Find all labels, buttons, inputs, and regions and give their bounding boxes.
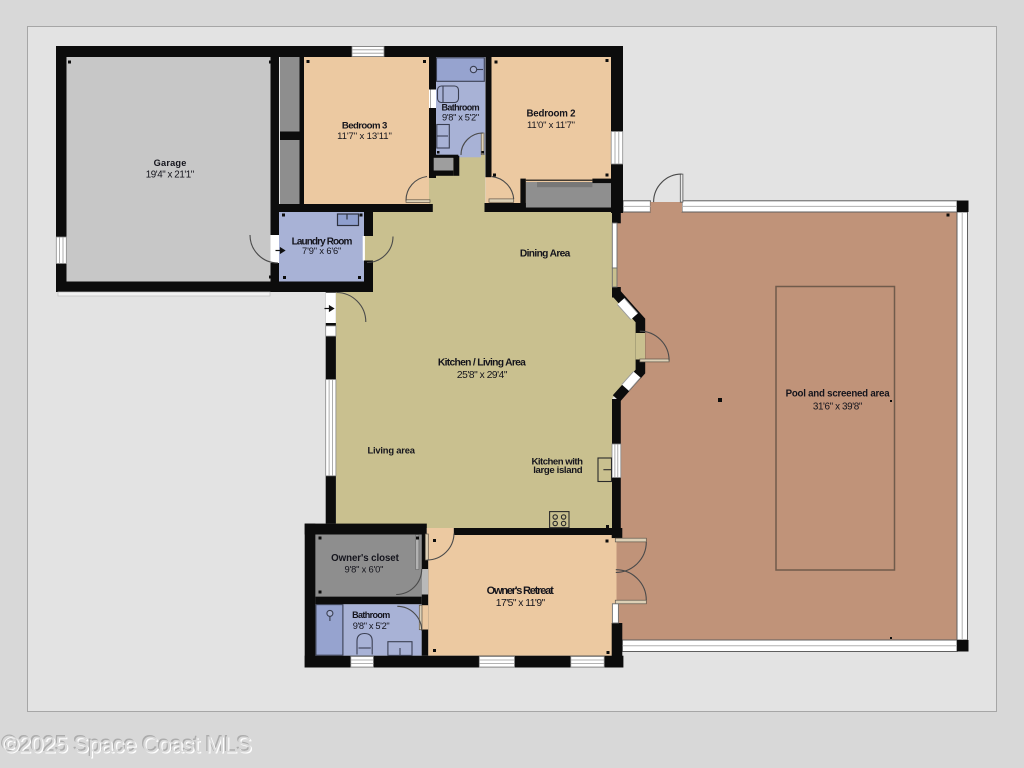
svg-text:Bathroom: Bathroom xyxy=(442,103,480,113)
svg-text:17'5" x 11'9": 17'5" x 11'9" xyxy=(496,598,546,609)
svg-text:19'4" x 21'1": 19'4" x 21'1" xyxy=(146,170,195,181)
svg-text:9'8" x 5'2": 9'8" x 5'2" xyxy=(442,113,479,123)
svg-text:31'6" x 39'8": 31'6" x 39'8" xyxy=(813,402,863,413)
svg-text:9'8" x 5'2": 9'8" x 5'2" xyxy=(353,621,390,631)
svg-text:large island: large island xyxy=(533,465,583,476)
svg-text:25'8" x 29'4": 25'8" x 29'4" xyxy=(457,370,508,381)
svg-text:Owner's Retreat: Owner's Retreat xyxy=(487,585,554,597)
svg-text:Pool and screened area: Pool and screened area xyxy=(786,389,891,400)
svg-text:Owner's closet: Owner's closet xyxy=(331,553,399,564)
svg-text:Living area: Living area xyxy=(367,445,415,456)
svg-text:7'9" x 6'6": 7'9" x 6'6" xyxy=(302,246,341,256)
svg-text:11'0" x 11'7": 11'0" x 11'7" xyxy=(527,120,575,131)
svg-text:9'8" x 6'0": 9'8" x 6'0" xyxy=(345,564,384,575)
svg-text:Kitchen / Living Area: Kitchen / Living Area xyxy=(438,358,526,369)
svg-text:Bathroom: Bathroom xyxy=(352,610,390,620)
svg-text:©2025 Space Coast MLS: ©2025 Space Coast MLS xyxy=(2,731,252,757)
svg-text:Dining Area: Dining Area xyxy=(520,248,571,259)
svg-text:11'7" x 13'11": 11'7" x 13'11" xyxy=(337,131,392,142)
svg-text:Garage: Garage xyxy=(154,158,187,168)
svg-text:Bedroom 2: Bedroom 2 xyxy=(527,109,576,120)
svg-text:Bedroom 3: Bedroom 3 xyxy=(342,120,388,131)
